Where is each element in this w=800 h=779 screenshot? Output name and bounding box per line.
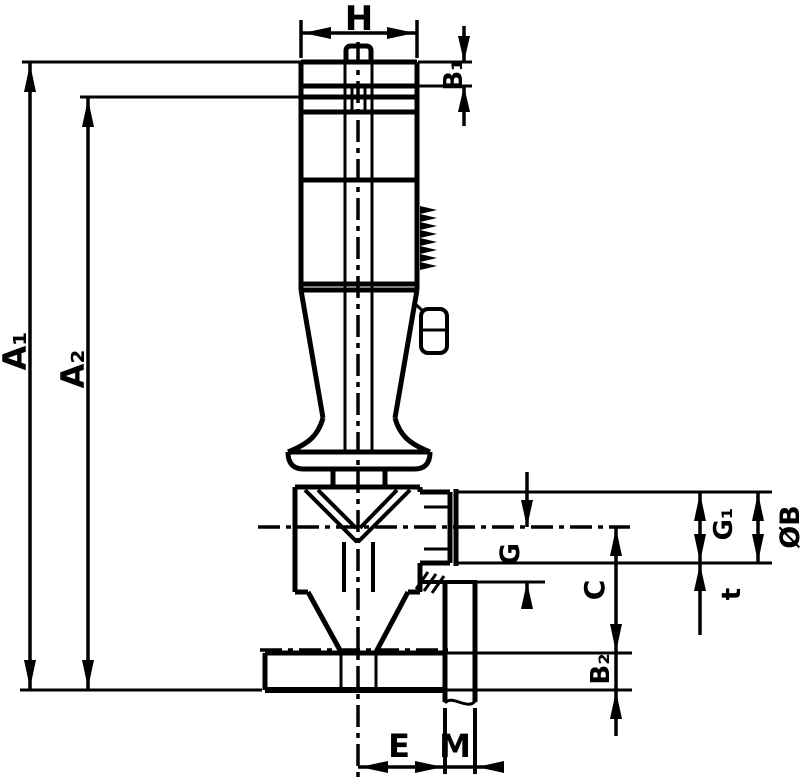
valve-dimension-drawing: H A₁ A₂ B₁ G₁ ØB G C t B₂ E M — [0, 0, 800, 779]
label-A1: A₁ — [0, 332, 34, 371]
label-E: E — [388, 727, 410, 765]
label-G: G — [495, 543, 526, 565]
label-B1: B₁ — [439, 59, 469, 90]
label-A2: A₂ — [54, 350, 92, 389]
label-t: t — [717, 588, 747, 600]
label-M: M — [439, 727, 471, 765]
label-B2: B₂ — [586, 653, 616, 684]
label-G1: G₁ — [709, 508, 739, 541]
drawing-canvas: H A₁ A₂ B₁ G₁ ØB G C t B₂ E M — [0, 0, 800, 779]
label-OB: ØB — [775, 505, 800, 549]
label-H: H — [345, 0, 373, 39]
label-C: C — [578, 580, 611, 601]
